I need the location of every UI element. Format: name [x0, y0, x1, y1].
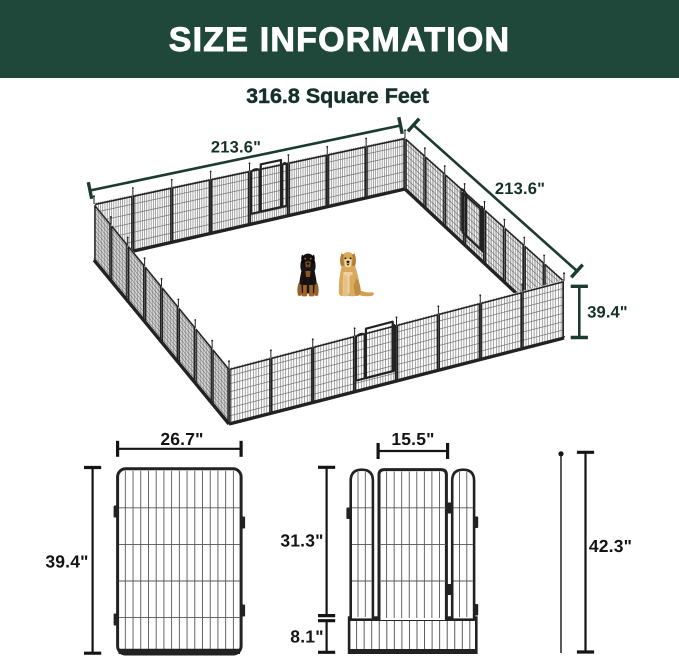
svg-text:31.3": 31.3"	[280, 531, 323, 551]
svg-text:213.6": 213.6"	[211, 139, 261, 157]
svg-text:8.1": 8.1"	[290, 627, 323, 647]
svg-text:15.5": 15.5"	[391, 429, 434, 449]
svg-text:39.4": 39.4"	[587, 304, 627, 322]
svg-text:42.3": 42.3"	[589, 536, 632, 556]
svg-text:39.4": 39.4"	[45, 552, 88, 572]
svg-text:26.7": 26.7"	[160, 429, 203, 449]
svg-text:213.6": 213.6"	[495, 180, 545, 198]
